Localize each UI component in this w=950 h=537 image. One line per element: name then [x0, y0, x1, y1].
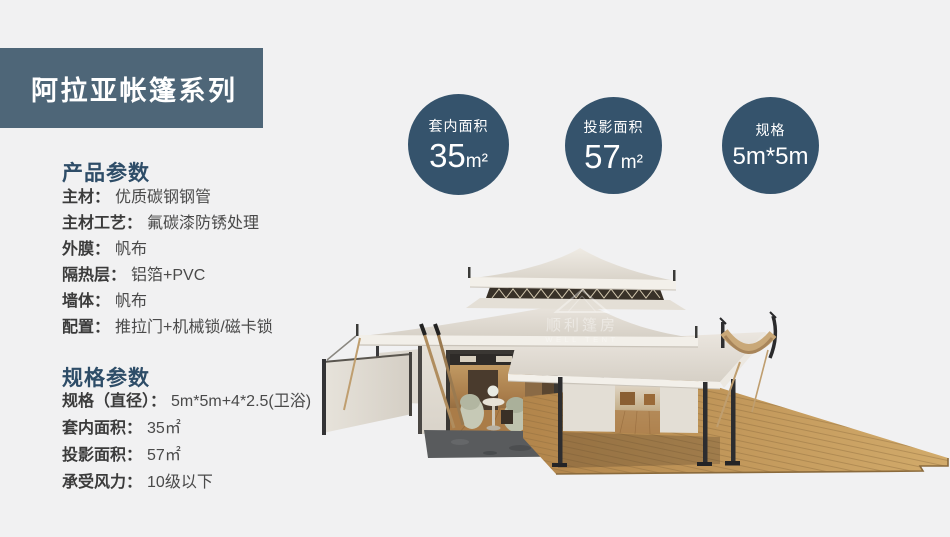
- param-row: 主材：优质碳钢钢管: [62, 185, 273, 211]
- param-label: 投影面积：: [62, 447, 142, 464]
- param-value: 帆布: [115, 293, 147, 310]
- badge-label: 套内面积: [429, 116, 489, 136]
- param-label: 规格（直径）：: [62, 393, 166, 410]
- product-params-title: 产品参数: [62, 157, 150, 187]
- param-label: 外膜：: [62, 241, 110, 258]
- badge-value: 35m²: [429, 139, 488, 174]
- porch-doorway: [615, 384, 660, 434]
- badge-value: 5m*5m: [732, 143, 808, 172]
- badge-size: 规格 5m*5m: [722, 97, 819, 194]
- badge-label: 规格: [756, 120, 786, 140]
- param-row: 主材工艺：氟碳漆防锈处理: [62, 211, 273, 237]
- product-params-list: 主材：优质碳钢钢管 主材工艺：氟碳漆防锈处理 外膜：帆布 隔热层：铝箔+PVC …: [62, 185, 273, 341]
- param-label: 套内面积：: [62, 420, 142, 437]
- badge-unit: m²: [466, 151, 488, 172]
- badge-interior-area: 套内面积 35m²: [408, 94, 509, 195]
- badge-projection-area: 投影面积 57m²: [565, 97, 662, 194]
- param-label: 墙体：: [62, 293, 110, 310]
- tent-illustration: 顺利篷房 WELL TENT: [320, 232, 950, 532]
- spec-params-list: 规格（直径）：5m*5m+4*2.5(卫浴) 套内面积：35㎡ 投影面积：57㎡…: [62, 388, 311, 496]
- tent-top-roof: [466, 248, 686, 310]
- param-row: 外膜：帆布: [62, 237, 273, 263]
- side-panel: [322, 346, 432, 435]
- badge-label: 投影面积: [584, 117, 644, 137]
- watermark-cn: 顺利篷房: [546, 316, 618, 334]
- watermark-en: WELL TENT: [545, 335, 618, 344]
- param-label: 隔热层：: [62, 267, 126, 284]
- param-value: 优质碳钢钢管: [115, 189, 211, 206]
- param-value: 57㎡: [147, 447, 181, 464]
- param-row: 套内面积：35㎡: [62, 415, 311, 442]
- product-sheet: 阿拉亚帐篷系列 套内面积 35m² 投影面积 57m² 规格 5m*5m 产品参…: [0, 0, 950, 534]
- product-image: 顺利篷房 WELL TENT: [320, 232, 950, 532]
- badge-unit: m²: [621, 152, 643, 173]
- param-label: 承受风力：: [62, 474, 142, 491]
- param-value: 10级以下: [147, 474, 213, 491]
- param-value: 推拉门+机械锁/磁卡锁: [115, 319, 273, 336]
- param-row: 隔热层：铝箔+PVC: [62, 263, 273, 289]
- param-label: 配置：: [62, 319, 110, 336]
- param-value: 帆布: [115, 241, 147, 258]
- param-value: 35㎡: [147, 420, 181, 437]
- param-label: 主材：: [62, 189, 110, 206]
- param-row: 规格（直径）：5m*5m+4*2.5(卫浴): [62, 388, 311, 415]
- param-value: 铝箔+PVC: [131, 267, 205, 284]
- badge-value: 57m²: [584, 140, 643, 175]
- param-row: 墙体：帆布: [62, 289, 273, 315]
- series-title: 阿拉亚帐篷系列: [31, 69, 238, 108]
- param-row: 承受风力：10级以下: [62, 469, 311, 496]
- param-row: 配置：推拉门+机械锁/磁卡锁: [62, 315, 273, 341]
- param-label: 主材工艺：: [62, 215, 142, 232]
- param-row: 投影面积：57㎡: [62, 442, 311, 469]
- param-value: 氟碳漆防锈处理: [147, 215, 259, 232]
- series-banner: 阿拉亚帐篷系列: [0, 48, 263, 128]
- param-value: 5m*5m+4*2.5(卫浴): [171, 393, 311, 410]
